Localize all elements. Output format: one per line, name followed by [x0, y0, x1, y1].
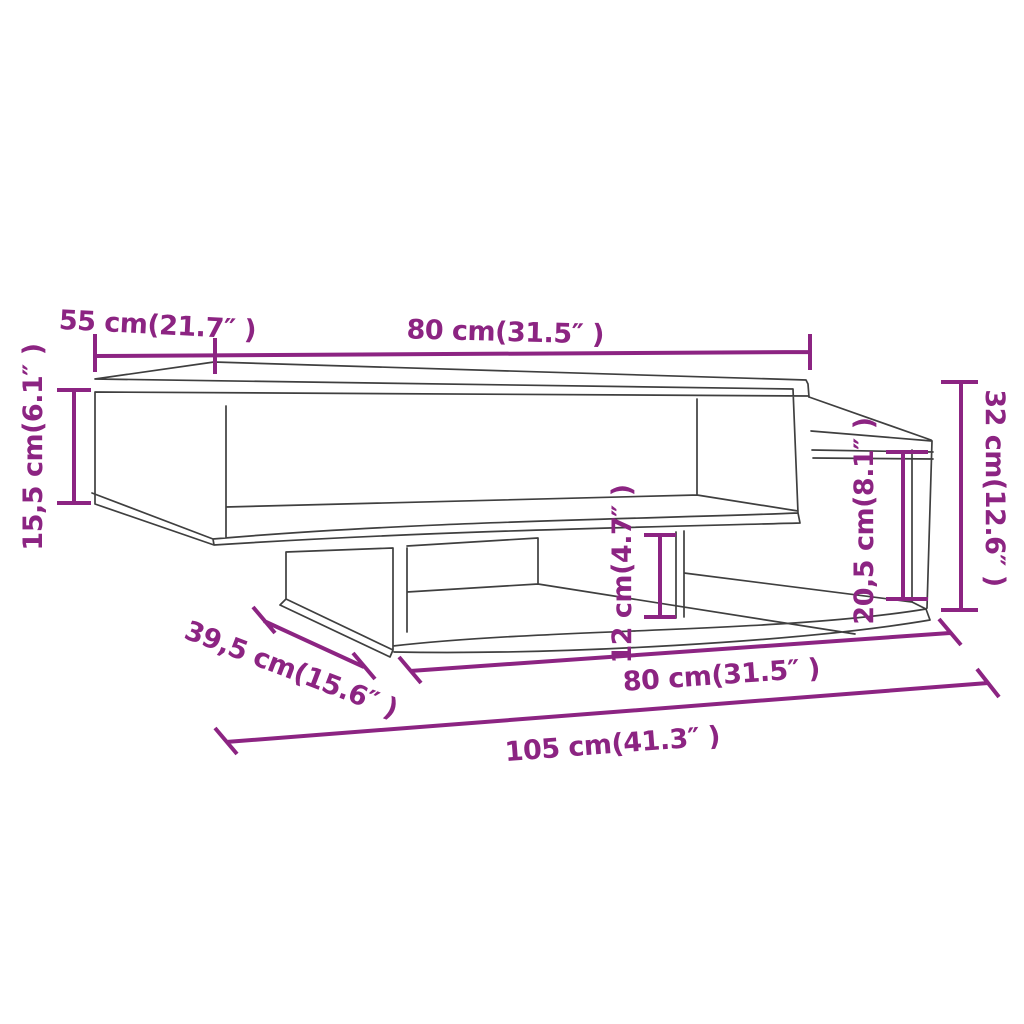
dim-label-upper-height: 15,5 cm(6.1″ ) [18, 343, 49, 550]
dim-label-top-width: 80 cm(31.5″ ) [406, 314, 604, 350]
dim-label-base-gap-height: 12 cm(4.7″ ) [607, 484, 638, 663]
diagram-canvas: 55 cm(21.7″ ) 80 cm(31.5″ ) 15,5 cm(6.1″… [0, 0, 1024, 1024]
dim-label-side-shelf-height: 20,5 cm(8.1″ ) [849, 417, 880, 624]
dim-label-total-height: 32 cm(12.6″ ) [979, 389, 1010, 586]
furniture-dimension-diagram: 55 cm(21.7″ ) 80 cm(31.5″ ) 15,5 cm(6.1″… [0, 0, 1024, 1024]
